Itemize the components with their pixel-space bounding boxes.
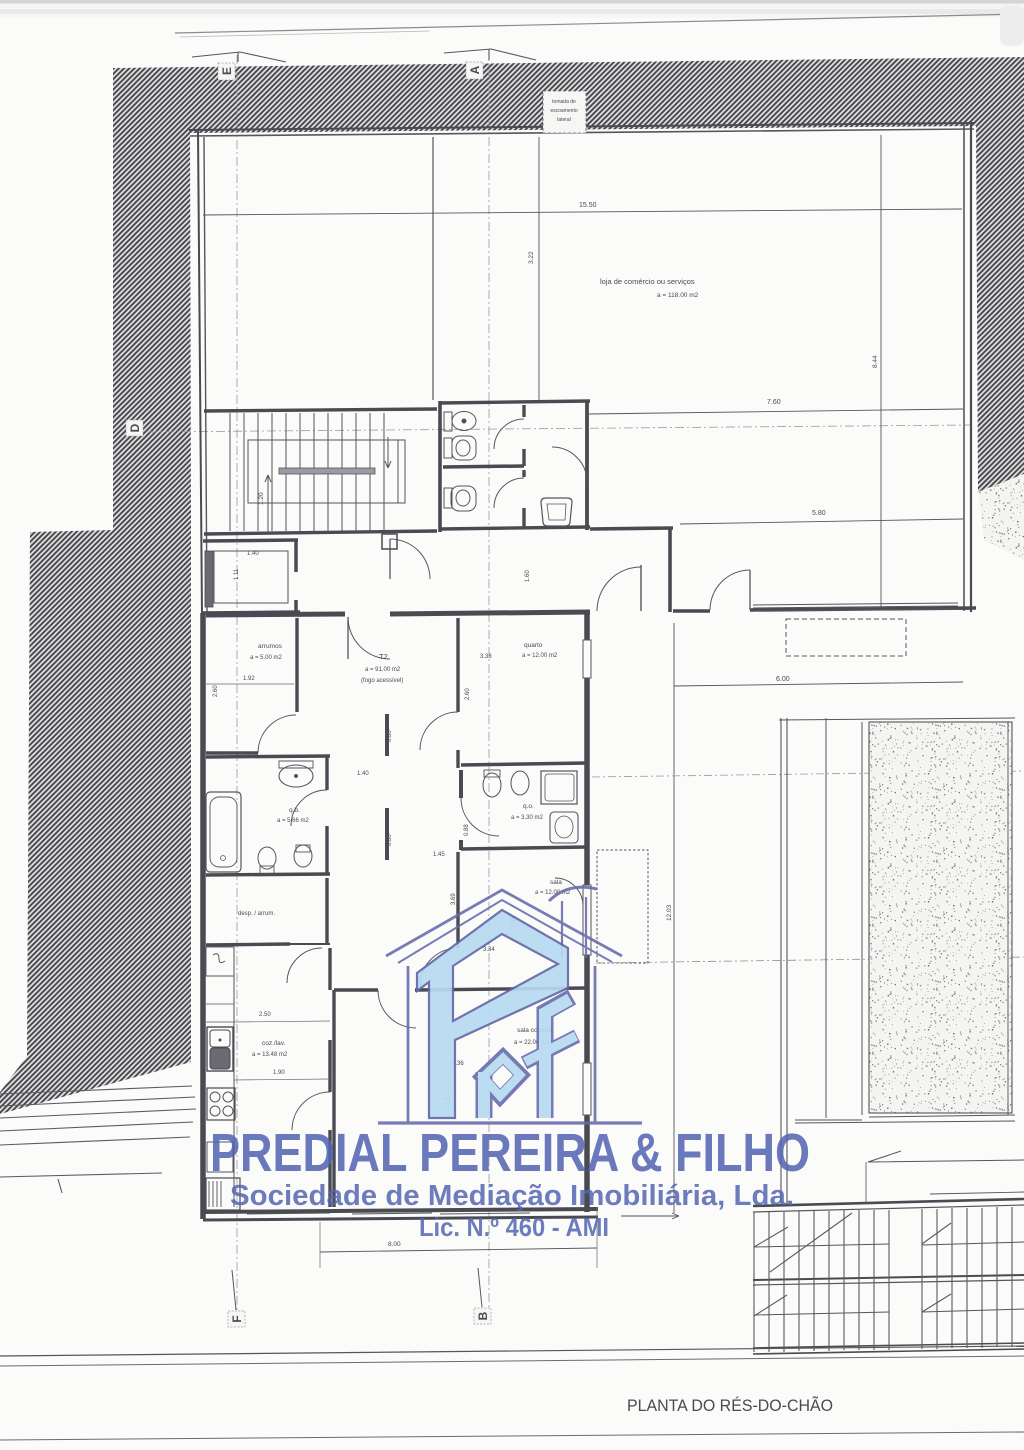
- svg-text:7.60: 7.60: [767, 399, 781, 406]
- svg-text:1.11: 1.11: [234, 568, 240, 580]
- svg-text:PREDIAL PEREIRA & FILHO: PREDIAL PEREIRA & FILHO: [210, 1123, 810, 1183]
- svg-text:F: F: [230, 1315, 244, 1322]
- svg-text:(fogo acessível): (fogo acessível): [361, 678, 403, 684]
- svg-text:0.80: 0.80: [387, 834, 393, 846]
- svg-text:1.60: 1.60: [525, 570, 531, 582]
- svg-text:tomada de: tomada de: [552, 99, 576, 105]
- svg-text:lateral: lateral: [557, 117, 571, 123]
- svg-text:q.o.: q.o.: [523, 803, 534, 810]
- svg-text:a = 118.00 m2: a = 118.00 m2: [657, 292, 699, 299]
- svg-text:a = 5.00 m2: a = 5.00 m2: [250, 655, 283, 661]
- svg-text:1.90: 1.90: [273, 1070, 285, 1076]
- svg-text:8.44: 8.44: [872, 355, 879, 368]
- svg-text:3.69: 3.69: [451, 893, 457, 905]
- svg-text:12.03: 12.03: [666, 904, 673, 921]
- svg-text:2.60: 2.60: [213, 685, 219, 697]
- svg-text:1.20: 1.20: [258, 492, 265, 505]
- svg-text:q.b.: q.b.: [289, 807, 300, 814]
- svg-text:E: E: [220, 67, 234, 75]
- svg-text:3.22: 3.22: [528, 251, 535, 264]
- svg-text:2.50: 2.50: [259, 1012, 271, 1018]
- svg-text:a = 91.00 m2: a = 91.00 m2: [365, 667, 401, 673]
- svg-text:coz./lav.: coz./lav.: [262, 1040, 286, 1047]
- svg-text:2.60: 2.60: [465, 688, 471, 700]
- svg-text:15.50: 15.50: [579, 202, 597, 209]
- svg-text:Sociedade de Mediação Imobiliá: Sociedade de Mediação Imobiliária, Lda.: [230, 1180, 794, 1212]
- svg-text:0.88: 0.88: [464, 824, 470, 836]
- svg-text:a = 12.00 m2: a = 12.00 m2: [522, 653, 558, 659]
- svg-text:a = 5.66 m2: a = 5.66 m2: [277, 818, 310, 824]
- svg-text:a = 3.30 m2: a = 3.30 m2: [511, 815, 544, 821]
- svg-text:1.92: 1.92: [243, 676, 255, 682]
- svg-text:T2: T2: [379, 652, 388, 661]
- svg-text:a = 13.48 m2: a = 13.48 m2: [252, 1052, 288, 1058]
- svg-text:D: D: [128, 423, 142, 432]
- svg-text:sala: sala: [550, 879, 562, 886]
- svg-text:0.80: 0.80: [387, 730, 393, 742]
- svg-text:1.40: 1.40: [247, 551, 259, 557]
- svg-text:quarto: quarto: [524, 642, 543, 649]
- svg-text:loja de comércio ou serviços: loja de comércio ou serviços: [600, 277, 695, 286]
- svg-text:PLANTA DO RÉS-DO-CHÃO: PLANTA DO RÉS-DO-CHÃO: [627, 1395, 833, 1415]
- svg-text:6.00: 6.00: [776, 676, 790, 683]
- svg-text:Lic. N.º 460 - AMI: Lic. N.º 460 - AMI: [419, 1212, 609, 1242]
- svg-text:1.40: 1.40: [357, 771, 369, 777]
- svg-text:3.38: 3.38: [480, 654, 492, 660]
- svg-text:3.34: 3.34: [483, 947, 495, 953]
- svg-text:A: A: [468, 65, 482, 74]
- svg-text:escoamento: escoamento: [550, 108, 577, 114]
- svg-text:B: B: [476, 1311, 490, 1320]
- svg-text:desp. / arrum.: desp. / arrum.: [238, 911, 275, 917]
- svg-text:8.00: 8.00: [388, 1241, 401, 1248]
- svg-text:5.80: 5.80: [812, 510, 826, 517]
- svg-text:1.45: 1.45: [433, 852, 445, 858]
- svg-text:arrumos: arrumos: [258, 643, 283, 650]
